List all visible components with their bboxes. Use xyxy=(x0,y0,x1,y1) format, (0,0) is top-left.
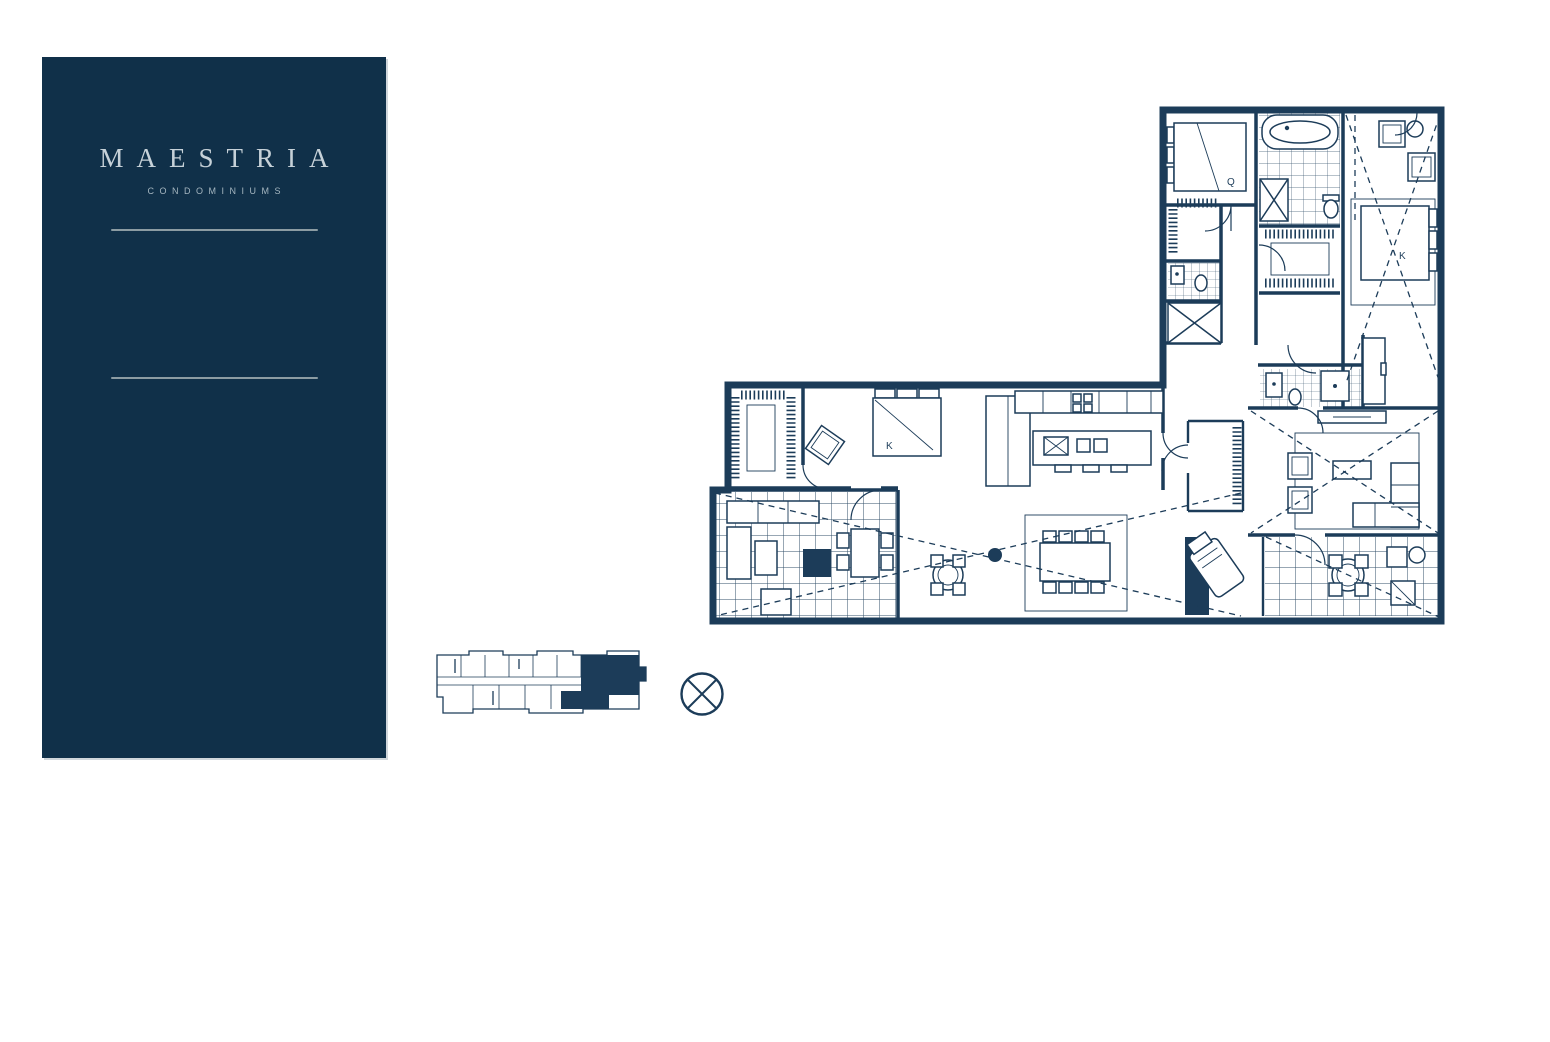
divider-line-bottom xyxy=(111,377,318,379)
label-bedroom-k-upper: K xyxy=(1399,251,1406,262)
brand-panel: MAESTRIA CONDOMINIUMS xyxy=(42,57,386,758)
label-bedroom-k-lower: K xyxy=(886,441,893,452)
key-plan xyxy=(433,647,650,717)
brand-subtitle: CONDOMINIUMS xyxy=(42,186,386,197)
highlighted-unit xyxy=(561,655,646,709)
brand-title: MAESTRIA xyxy=(42,143,386,173)
divider-line-top xyxy=(111,229,318,231)
label-bedroom-q: Q xyxy=(1227,177,1235,188)
floor-plan: Q K K xyxy=(703,103,1450,630)
page: MAESTRIA CONDOMINIUMS xyxy=(0,0,1550,1042)
compass-icon xyxy=(678,670,726,718)
